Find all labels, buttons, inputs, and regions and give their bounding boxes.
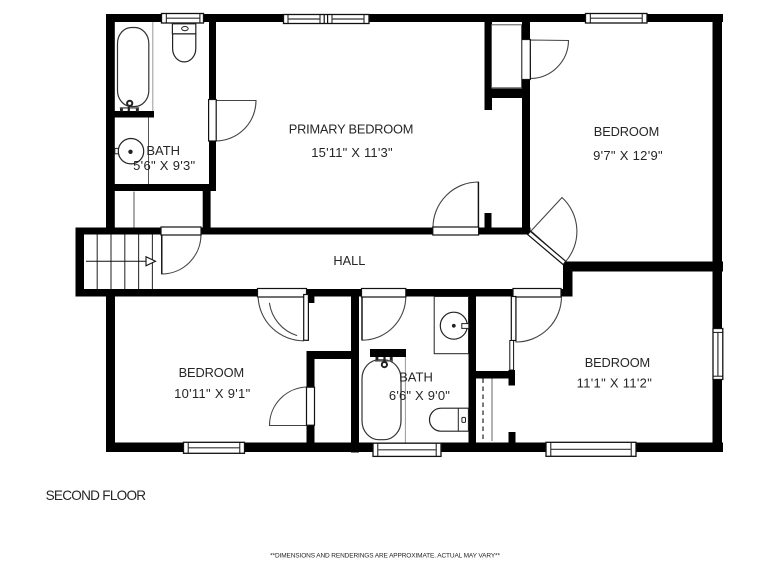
svg-text:6'6" X 9'0": 6'6" X 9'0" [389,388,450,403]
svg-text:15'11" X 11'3": 15'11" X 11'3" [311,145,393,160]
svg-text:PRIMARY BEDROOM: PRIMARY BEDROOM [289,122,414,137]
svg-text:BEDROOM: BEDROOM [179,365,244,380]
svg-text:10'11" X 9'1": 10'11" X 9'1" [174,386,250,401]
svg-text:**DIMENSIONS AND RENDERINGS AR: **DIMENSIONS AND RENDERINGS ARE APPROXIM… [270,553,500,560]
svg-text:9'7" X 12'9": 9'7" X 12'9" [593,148,663,163]
svg-text:BEDROOM: BEDROOM [585,355,650,370]
svg-text:5'6" X 9'3": 5'6" X 9'3" [133,158,195,173]
svg-text:BATH: BATH [146,143,180,158]
svg-text:BATH: BATH [399,370,433,385]
svg-text:11'1" X 11'2": 11'1" X 11'2" [577,375,653,390]
svg-text:HALL: HALL [333,253,365,268]
svg-text:BEDROOM: BEDROOM [594,124,659,139]
svg-text:SECOND FLOOR: SECOND FLOOR [46,488,147,503]
